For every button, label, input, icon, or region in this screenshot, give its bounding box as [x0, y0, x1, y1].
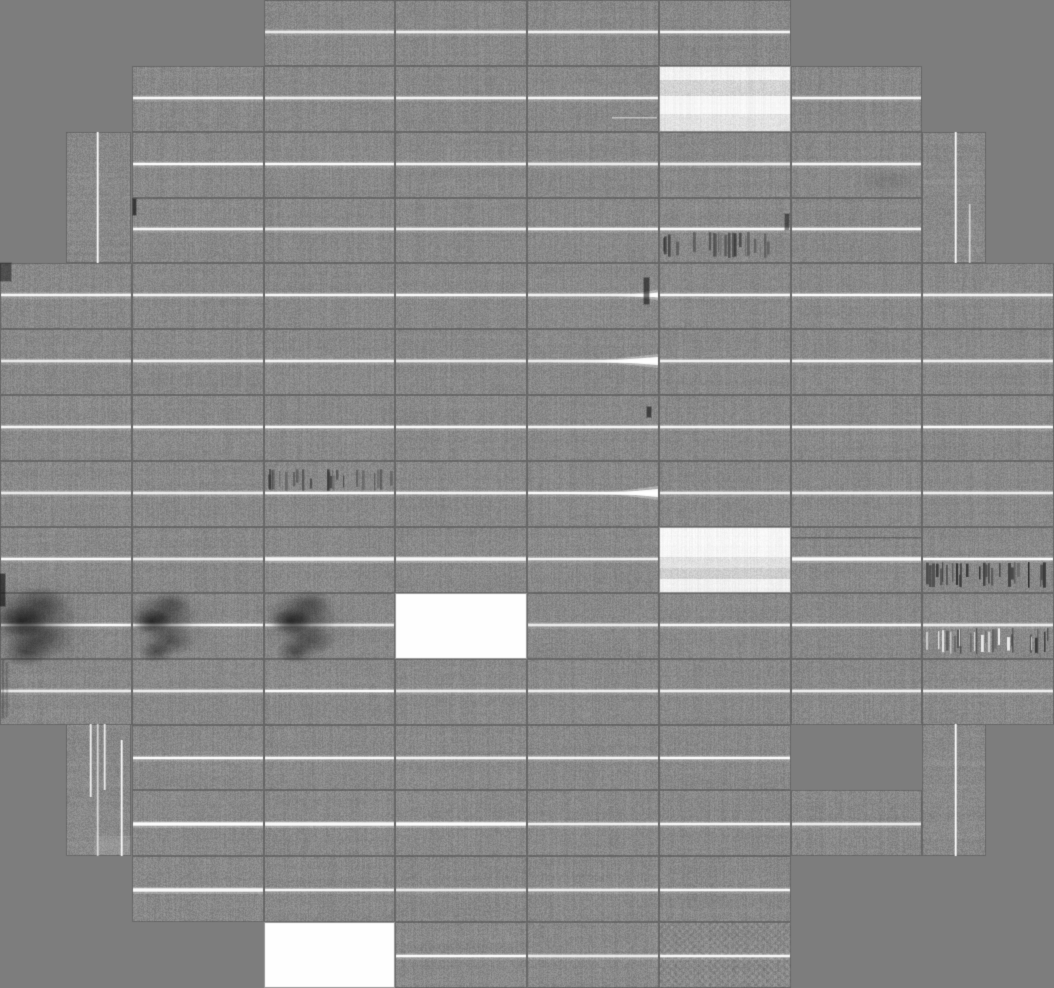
focal-plane-mosaic	[0, 0, 1054, 988]
detector-mosaic-canvas	[0, 0, 1054, 988]
